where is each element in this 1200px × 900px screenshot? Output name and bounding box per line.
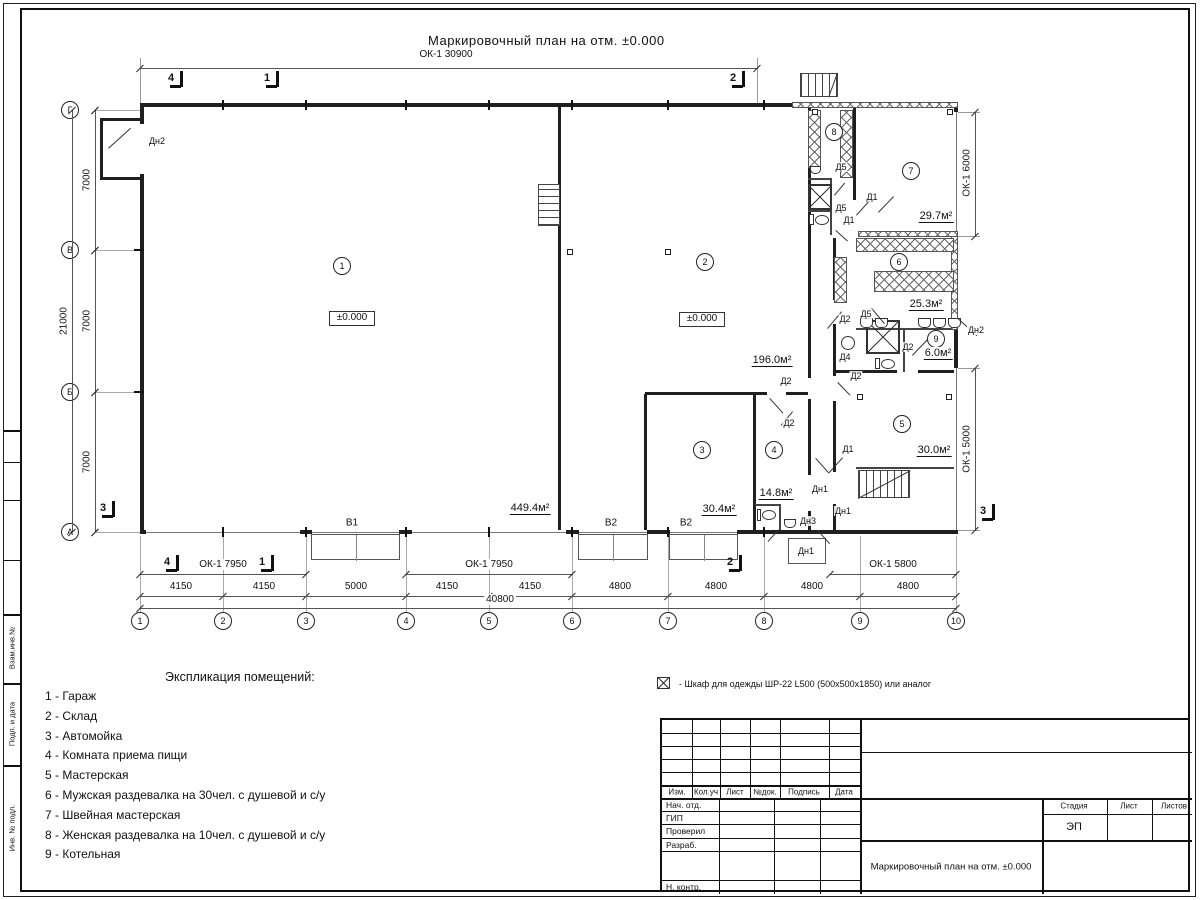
dimension-label: 4800: [607, 581, 633, 592]
door-leaf: [878, 196, 894, 213]
door-label: Д2: [838, 314, 851, 324]
extension-line: [958, 112, 980, 113]
column-mark: [134, 249, 144, 251]
extension-line: [958, 368, 980, 369]
wall: [558, 106, 561, 530]
tb-stage-label: Стадия: [1060, 802, 1087, 811]
tb-col-ndok: №док.: [753, 788, 776, 797]
dimension-label: 4800: [799, 581, 825, 592]
tb-col-izm: Изм.: [668, 788, 685, 797]
wall: [645, 392, 767, 395]
wall: [786, 392, 808, 395]
room-number: 8: [825, 123, 843, 141]
section-mark: [261, 569, 272, 572]
tb-col-podpis: Подпись: [788, 788, 820, 797]
dim-line: [830, 574, 956, 575]
section-mark: [982, 518, 993, 521]
column-mark: [405, 100, 407, 110]
dimension-label: 4150: [251, 581, 277, 592]
room-number: 4: [765, 441, 783, 459]
tb-col-koluch: Кол.уч: [694, 788, 718, 797]
door-leaf: [835, 230, 848, 242]
wall: [808, 178, 832, 180]
wall: [835, 370, 897, 373]
dimension-label: 40800: [484, 594, 516, 605]
tb-col-data: Дата: [835, 788, 853, 797]
vestibule-wall: [100, 118, 103, 180]
wardrobe-note: - Шкаф для одежды ШР-22 L500 (500x500x18…: [655, 674, 975, 694]
room-number: 1: [333, 257, 351, 275]
axis-bubble: Б: [61, 383, 79, 401]
wall: [853, 106, 856, 200]
section-mark-number: 2: [730, 72, 736, 84]
wall: [856, 467, 958, 469]
dim-line: [406, 574, 572, 575]
dim-line: [140, 68, 758, 69]
section-mark: [266, 85, 277, 88]
axis-bubble: 10: [947, 612, 965, 630]
room-number: 7: [902, 162, 920, 180]
washbasin: [841, 336, 855, 350]
masonry-wall-hatch: [792, 102, 958, 108]
column-mark: [405, 527, 407, 537]
dim-line: [72, 110, 73, 532]
axis-bubble: 2: [214, 612, 232, 630]
column-mark: [667, 100, 669, 110]
wall: [833, 324, 836, 376]
stamp-inv-podl: Инв. № подл.: [8, 805, 17, 852]
room-area-label: 14.8м²: [759, 487, 794, 500]
section-mark-number: 3: [980, 505, 986, 517]
axis-bubble: 5: [480, 612, 498, 630]
dimension-label: ОК-1 7950: [463, 559, 515, 570]
room-area-label: 30.4м²: [702, 503, 737, 516]
toilet: [762, 510, 776, 520]
gate-label: В2: [603, 518, 619, 529]
tb-role-proveril: Проверил: [666, 826, 705, 836]
door-label: Дн1: [797, 546, 815, 556]
column-mark: [571, 100, 573, 110]
window-strip: [954, 368, 958, 530]
room-area-label: 25.3м²: [909, 298, 944, 311]
dimension-label: 4150: [434, 581, 460, 592]
wall: [644, 394, 647, 530]
dim-line: [975, 368, 976, 530]
legend-item: 6 - Мужская раздевалка на 30чел. с душев…: [45, 788, 325, 802]
door-leaf: [815, 458, 829, 474]
dimension-label: ОК-1 30900: [417, 49, 474, 60]
extension-line: [757, 58, 758, 103]
dimension-label: 4150: [517, 581, 543, 592]
column-mark: [305, 100, 307, 110]
tb-sheet-label: Лист: [1120, 802, 1137, 811]
section-mark: [729, 569, 740, 572]
washbasin: [784, 519, 796, 528]
dim-line: [140, 596, 956, 597]
dim-line: [95, 110, 96, 532]
room-area-label: 29.7м²: [919, 210, 954, 223]
door-leaf: [108, 128, 131, 149]
axis-bubble: 3: [297, 612, 315, 630]
room-area-label: 6.0м²: [924, 347, 953, 360]
legend-item: 3 - Автомойка: [45, 729, 122, 743]
section-mark: [732, 85, 743, 88]
legend-item: 7 - Швейная мастерская: [45, 808, 180, 822]
level-mark: ±0.000: [679, 312, 725, 327]
axis-bubble: 1: [131, 612, 149, 630]
section-mark: [170, 85, 181, 88]
door-label: Д5: [859, 309, 872, 319]
legend-item: 1 - Гараж: [45, 689, 96, 703]
legend-item: 4 - Комната приема пищи: [45, 748, 187, 762]
section-mark-number: 4: [168, 72, 174, 84]
section-mark: [102, 515, 113, 518]
toilet: [815, 215, 829, 225]
axis-line: [96, 532, 140, 533]
column-mark: [571, 527, 573, 537]
column-mark: [567, 249, 573, 255]
axis-bubble: 9: [851, 612, 869, 630]
extension-line: [140, 58, 141, 103]
tb-doc-title: Маркировочный план на отм. ±0.000: [871, 862, 1032, 873]
column-mark: [947, 109, 953, 115]
column-mark: [812, 109, 818, 115]
wall: [779, 504, 781, 530]
wall: [808, 210, 832, 212]
door-label: Д1: [865, 192, 878, 202]
stamp-podp-data: Подп. и дата: [8, 702, 17, 746]
dimension-label: ОК-1 5800: [867, 559, 919, 570]
door-label: Дн1: [834, 506, 852, 516]
column-mark: [488, 527, 490, 537]
room-number: 9: [927, 330, 945, 348]
axis-line: [96, 110, 140, 111]
door-label: Д1: [841, 444, 854, 454]
axis-bubble: В: [61, 241, 79, 259]
gate-leaf: [311, 534, 400, 560]
dim-line: [140, 608, 956, 609]
stamp-vzam-inv: Взам.инв.№: [8, 627, 17, 669]
dimension-label: 4800: [703, 581, 729, 592]
room-area-label: 196.0м²: [752, 354, 793, 367]
legend-item: 8 - Женская раздевалка на 10чел. с душев…: [45, 828, 325, 842]
tb-sheets-label: Листов: [1161, 802, 1187, 811]
toilet: [875, 358, 880, 369]
toilet: [809, 214, 814, 225]
wardrobe-row: [834, 257, 847, 303]
window-strip: [954, 112, 958, 236]
room-area-label: 30.0м²: [917, 444, 952, 457]
section-mark-number: 2: [727, 556, 733, 568]
vestibule-wall: [100, 177, 140, 180]
door-leaf: [837, 382, 850, 396]
dimension-label: 4800: [895, 581, 921, 592]
door-label: Дн3: [799, 516, 817, 526]
gate-label: В1: [344, 518, 360, 529]
column-mark: [763, 100, 765, 110]
washbasin: [810, 166, 821, 174]
room-number: 6: [890, 253, 908, 271]
column-mark: [222, 527, 224, 537]
tb-stage-value: ЭП: [1066, 821, 1082, 833]
legend-item: 9 - Котельная: [45, 847, 120, 861]
washbasin: [860, 318, 873, 328]
section-mark-number: 1: [259, 556, 265, 568]
side-stamp: Взам.инв.№ Подп. и дата Инв. № подл.: [3, 430, 20, 892]
dimension-label: 7000: [82, 167, 93, 193]
extension-line: [958, 530, 980, 531]
column-mark: [763, 527, 765, 537]
column-mark: [305, 527, 307, 537]
wardrobe-row: [874, 271, 954, 292]
toilet: [881, 359, 895, 369]
dim-line: [975, 112, 976, 236]
wall-ladder: [538, 184, 560, 226]
title-block: Изм. Кол.уч Лист №док. Подпись Дата Нач.…: [660, 718, 1190, 892]
door-label: Д2: [901, 342, 914, 352]
room-area-label: 449.4м²: [510, 502, 551, 515]
column-mark: [665, 249, 671, 255]
room-legend: Экспликация помещений: 1 - Гараж2 - Скла…: [40, 668, 470, 868]
masonry-wall-hatch: [858, 231, 958, 237]
wall: [808, 399, 811, 475]
door-label: Д2: [782, 418, 795, 428]
column-mark: [857, 394, 863, 400]
wardrobe-symbol-icon: [657, 677, 670, 689]
door-label: Дн2: [148, 136, 166, 146]
washbasin: [933, 318, 946, 328]
tb-role-gip: ГИП: [666, 813, 683, 823]
room-number: 2: [696, 253, 714, 271]
door-label: Д5: [834, 203, 847, 213]
door-label: Дн1: [811, 484, 829, 494]
toilet: [757, 509, 761, 521]
axis-bubble: 8: [755, 612, 773, 630]
dimension-label: 4150: [168, 581, 194, 592]
section-mark-number: 1: [264, 72, 270, 84]
room-number: 5: [893, 415, 911, 433]
door-leaf: [834, 183, 845, 196]
axis-line: [668, 536, 669, 612]
axis-bubble: 7: [659, 612, 677, 630]
shower-cabin: [808, 184, 832, 210]
wall: [755, 504, 781, 506]
tb-col-list: Лист: [726, 788, 743, 797]
axis-bubble: 6: [563, 612, 581, 630]
wall: [918, 370, 958, 373]
wardrobe-note-text: - Шкаф для одежды ШР-22 L500 (500x500x18…: [679, 679, 931, 689]
gate-leaf: [578, 534, 648, 560]
door-label: Дн2: [967, 325, 985, 335]
wall: [753, 394, 756, 530]
dimension-label: ОК-1 5000: [962, 423, 973, 475]
washbasin: [918, 318, 931, 328]
door-label: Д5: [834, 162, 847, 172]
extension-line: [958, 236, 980, 237]
dimension-label: 21000: [59, 305, 70, 337]
legend-item: 2 - Склад: [45, 709, 97, 723]
dimension-label: 7000: [82, 308, 93, 334]
axis-bubble: 4: [397, 612, 415, 630]
tb-role-nkontr: Н. контр.: [666, 882, 701, 892]
section-mark-number: 4: [164, 556, 170, 568]
legend-items: 1 - Гараж2 - Склад3 - Автомойка4 - Комна…: [45, 668, 465, 868]
section-mark-number: 3: [100, 502, 106, 514]
dimension-label: ОК-1 6000: [962, 147, 973, 199]
drawing-sheet: Маркировочный план на отм. ±0.000 ОК-1 3…: [0, 0, 1200, 900]
column-mark: [946, 394, 952, 400]
dimension-label: 7000: [82, 449, 93, 475]
door-label: Д2: [779, 376, 792, 386]
gate-label: В2: [678, 518, 694, 529]
column-mark: [222, 100, 224, 110]
wardrobe-row: [856, 238, 954, 252]
section-mark: [166, 569, 177, 572]
level-mark: ±0.000: [329, 311, 375, 326]
tb-role-razrab: Разраб.: [666, 840, 697, 850]
column-mark: [134, 391, 144, 393]
door-leaf: [769, 398, 783, 414]
door-label: Д1: [842, 215, 855, 225]
wardrobe-row: [808, 110, 821, 168]
column-mark: [667, 527, 669, 537]
door-label: Д4: [838, 352, 851, 362]
column-mark: [488, 100, 490, 110]
dimension-label: ОК-1 7950: [197, 559, 249, 570]
room-number: 3: [693, 441, 711, 459]
door-opening: [140, 124, 144, 174]
axis-line: [764, 536, 765, 612]
legend-item: 5 - Мастерская: [45, 768, 129, 782]
dimension-label: 5000: [343, 581, 369, 592]
vestibule-wall: [100, 118, 140, 121]
dim-line: [140, 574, 306, 575]
wall: [833, 401, 836, 472]
door-label: Д2: [849, 371, 862, 381]
tb-role-nach-otd: Нач. отд.: [666, 800, 701, 810]
